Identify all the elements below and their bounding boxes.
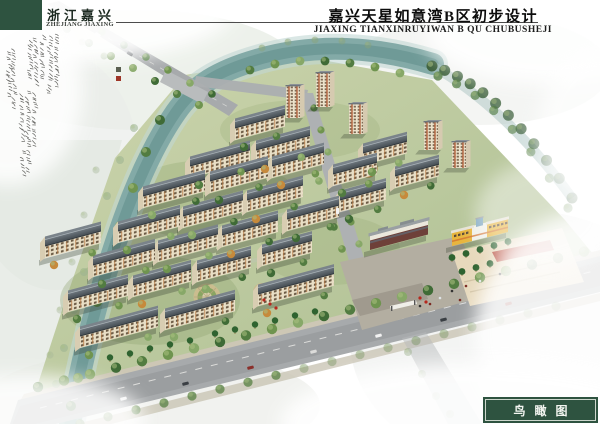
tree — [155, 115, 165, 125]
tree — [129, 64, 137, 72]
tree — [315, 177, 323, 185]
tree — [73, 315, 81, 323]
tree — [371, 298, 381, 308]
tree — [142, 266, 150, 274]
red-flag — [274, 306, 277, 309]
tree — [374, 205, 382, 213]
tree — [383, 343, 392, 352]
person — [429, 303, 432, 306]
tree — [116, 156, 124, 164]
tree — [151, 77, 159, 85]
person — [459, 299, 462, 302]
tree — [267, 324, 277, 334]
tree — [273, 132, 281, 140]
tree — [137, 356, 147, 366]
tree — [346, 59, 355, 68]
tree — [411, 336, 420, 345]
tree — [395, 159, 403, 167]
tree — [202, 285, 210, 293]
tree — [296, 57, 305, 66]
tree — [465, 78, 476, 89]
tree — [400, 191, 408, 199]
tree — [130, 124, 138, 132]
tree — [299, 364, 308, 373]
person — [419, 305, 422, 308]
tree — [321, 57, 330, 66]
tree — [300, 258, 308, 266]
tree — [237, 168, 245, 176]
tree — [103, 192, 111, 200]
tree — [423, 285, 433, 295]
tree — [265, 238, 273, 246]
tree — [80, 268, 88, 276]
tree — [98, 280, 106, 288]
tree — [252, 215, 260, 223]
tree — [526, 147, 535, 156]
tree — [371, 63, 380, 72]
tree — [433, 71, 442, 80]
view-label-box: 鸟瞰图 — [483, 397, 598, 423]
tree — [452, 79, 461, 88]
aerial-rendering — [0, 0, 600, 424]
tree — [60, 344, 68, 352]
tree — [138, 300, 146, 308]
tree — [230, 218, 238, 226]
tree — [355, 240, 362, 247]
tree — [187, 391, 196, 400]
tree — [324, 148, 331, 155]
tree — [80, 211, 87, 218]
tree — [489, 106, 498, 115]
tree — [215, 385, 224, 394]
tree — [508, 125, 517, 134]
tree — [365, 180, 373, 188]
red-flag — [418, 296, 421, 299]
tree — [339, 38, 346, 45]
tree — [195, 181, 203, 189]
tree — [159, 398, 168, 407]
tree — [46, 351, 53, 358]
tree — [186, 79, 194, 87]
tree — [163, 265, 171, 273]
tree — [355, 350, 364, 359]
tree — [141, 147, 151, 157]
tree — [163, 350, 173, 360]
person — [465, 285, 468, 288]
red-flag — [268, 302, 271, 305]
tree — [195, 101, 203, 109]
tree — [178, 287, 186, 295]
tree — [267, 269, 275, 277]
tree — [368, 168, 376, 176]
tree — [215, 196, 223, 204]
tree — [312, 37, 319, 44]
tree — [115, 302, 123, 310]
tree — [427, 61, 438, 72]
tree — [246, 66, 255, 75]
tree — [255, 183, 263, 191]
tree — [449, 279, 459, 289]
sheet-title-cn: 嘉兴天星如意湾B区初步设计 — [280, 5, 538, 26]
tree — [144, 333, 152, 341]
tree — [271, 371, 280, 380]
tree — [365, 42, 372, 49]
tree — [259, 45, 266, 52]
tree — [167, 232, 175, 240]
tree — [215, 337, 225, 347]
person — [479, 280, 482, 283]
tree — [298, 153, 306, 161]
tree — [293, 317, 303, 327]
tree — [92, 166, 99, 173]
tree — [205, 252, 213, 260]
tree — [516, 123, 527, 134]
tree — [271, 60, 280, 69]
tree — [263, 309, 271, 317]
tree — [503, 110, 514, 121]
sheet-title-en: JIAXING TIANXINRUYIWAN B QU CHUBUSHEJI — [280, 25, 552, 35]
tree — [439, 329, 448, 338]
tree — [338, 245, 346, 253]
person — [439, 297, 442, 300]
car — [336, 208, 339, 214]
tree — [312, 170, 320, 178]
corner-brand-block — [0, 0, 42, 30]
tree — [50, 261, 58, 269]
tree — [319, 311, 329, 321]
tree — [338, 189, 346, 197]
tree — [327, 223, 335, 231]
tree — [240, 143, 248, 151]
seal-stamp-dark — [116, 67, 121, 72]
region-label-en: ZHEJIANG JIAXING — [46, 21, 114, 28]
tree — [397, 292, 407, 302]
tree — [173, 90, 181, 98]
presentation-board: 浙江嘉兴 ZHEJIANG JIAXING 嘉兴天星如意湾B区初步设计 JIAX… — [0, 0, 600, 424]
person — [451, 290, 454, 293]
tree — [277, 181, 285, 189]
tree — [111, 362, 121, 372]
tree — [85, 351, 93, 359]
tree — [88, 249, 96, 257]
tree — [227, 250, 235, 258]
tree — [290, 203, 298, 211]
tree — [404, 348, 412, 356]
tree — [241, 330, 251, 340]
view-label-text: 鸟瞰图 — [513, 402, 576, 419]
tree — [123, 246, 131, 254]
tree — [192, 197, 200, 205]
tree — [188, 231, 196, 239]
red-flag — [424, 300, 427, 303]
tree — [56, 306, 63, 313]
red-flag — [262, 298, 265, 301]
tree — [170, 333, 178, 341]
tree — [239, 273, 247, 281]
tree — [345, 304, 355, 314]
tree — [327, 357, 336, 366]
tree — [320, 292, 328, 300]
tree — [85, 369, 95, 379]
tree — [208, 90, 216, 98]
tree — [317, 126, 324, 133]
tree — [68, 258, 75, 265]
tree — [222, 317, 230, 325]
tree — [285, 39, 292, 46]
tree — [261, 165, 269, 173]
tree — [128, 183, 138, 193]
tree — [164, 66, 172, 74]
tree — [345, 215, 353, 223]
tree — [148, 211, 156, 219]
tree — [243, 378, 252, 387]
tree — [471, 91, 480, 100]
tree — [292, 234, 300, 242]
seal-stamp-red — [116, 76, 121, 81]
tree — [427, 182, 435, 190]
tree — [396, 69, 405, 78]
